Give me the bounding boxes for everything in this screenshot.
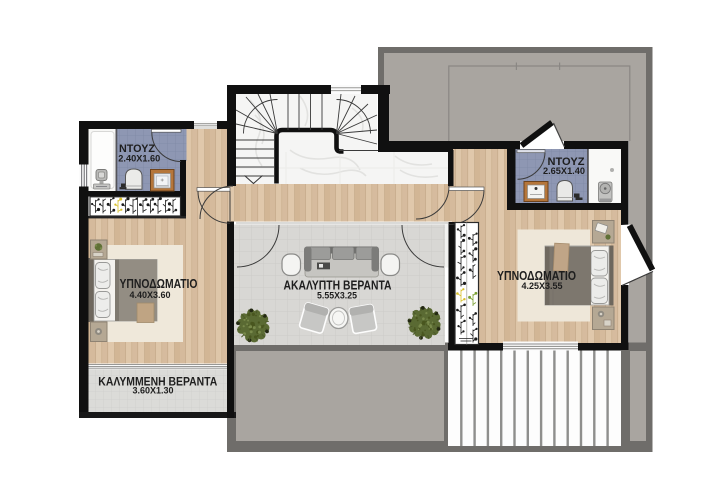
- svg-text:5.55X3.25: 5.55X3.25: [317, 289, 357, 300]
- svg-text:2.40X1.60: 2.40X1.60: [118, 153, 160, 163]
- svg-text:2.65X1.40: 2.65X1.40: [543, 166, 585, 176]
- svg-text:4.40X3.60: 4.40X3.60: [130, 289, 171, 300]
- svg-text:3.60X1.30: 3.60X1.30: [133, 385, 174, 396]
- svg-text:4.25X3.55: 4.25X3.55: [522, 280, 563, 291]
